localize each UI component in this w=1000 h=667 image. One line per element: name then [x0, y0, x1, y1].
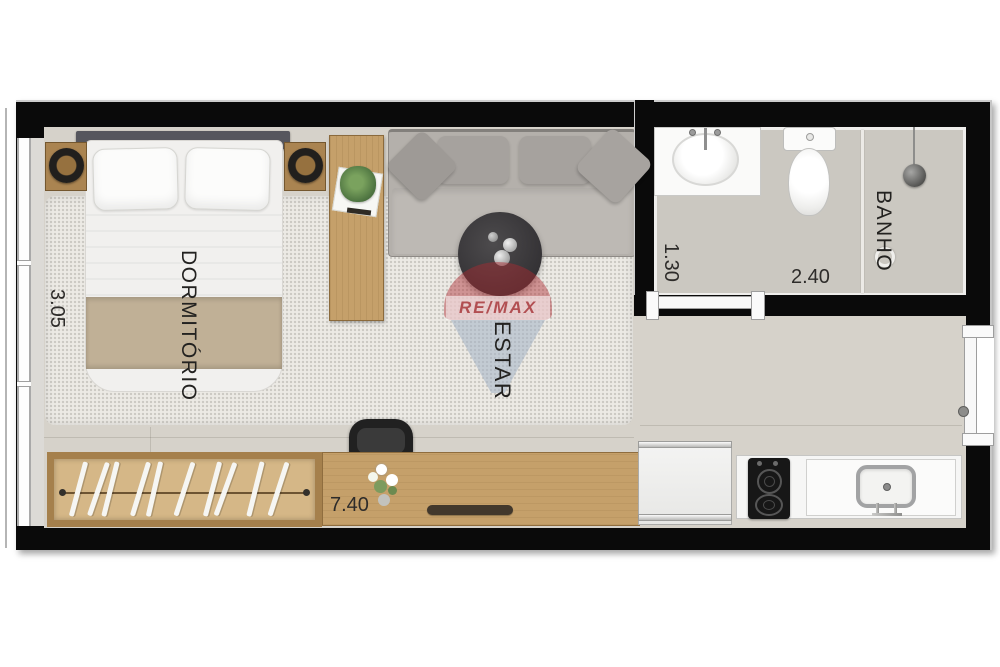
burner-ring: [764, 476, 775, 487]
dimension-total-length: 7.40: [330, 494, 369, 517]
faucet-handle: [714, 129, 721, 136]
bathroom-door-jamb: [751, 291, 765, 320]
toilet-flush-button: [806, 133, 814, 141]
nightstand-right: [284, 142, 326, 191]
decor-tray: [288, 148, 323, 183]
bathroom-label: BANHO: [871, 190, 895, 272]
bed-pillow: [184, 147, 271, 211]
window-glass: [31, 138, 44, 526]
hanger: [69, 461, 88, 516]
chair-seat: [357, 428, 405, 454]
appliance-fridge: [638, 441, 732, 525]
rail-end: [59, 489, 66, 496]
dimension-bathroom-width: 1.30: [659, 243, 682, 282]
flower: [376, 464, 387, 475]
hanger: [246, 461, 264, 516]
facade-line: [5, 108, 7, 548]
window-mullion: [17, 381, 31, 387]
wardrobe: [47, 452, 322, 527]
leaves: [388, 486, 397, 495]
nightstand-left: [45, 142, 87, 191]
entry-door: [964, 337, 977, 434]
kitchen-faucet: [883, 483, 891, 491]
living-label: ESTAR: [489, 321, 515, 400]
bathroom-wall: [634, 100, 654, 316]
sideboard: [329, 135, 384, 321]
desk-accessory: [427, 505, 513, 515]
toilet: [788, 148, 830, 216]
shower-partition: [861, 130, 864, 293]
faucet-handle: [689, 129, 696, 136]
entry-door-jamb: [962, 325, 994, 338]
bedroom-label: DORMITÓRIO: [176, 250, 200, 402]
dimension-bathroom-length: 2.40: [791, 266, 830, 289]
appliance-handle: [638, 441, 732, 448]
hanger: [267, 462, 289, 517]
appliance-edge: [638, 514, 732, 521]
burner-ring: [763, 500, 775, 510]
cooktop-knob: [757, 461, 762, 466]
dimension-bedroom-width: 3.05: [45, 289, 68, 328]
window-frame: [17, 138, 31, 526]
floor-joint-line: [44, 437, 634, 438]
floor-joint-line: [640, 425, 962, 426]
cooktop-knob: [773, 461, 778, 466]
remax-logo-text: RE/MAX: [459, 298, 537, 318]
floor-joint-line: [150, 427, 151, 452]
floorplan-image: RE/MAX: [0, 0, 1000, 667]
decor-tray: [49, 148, 84, 183]
entry-door-handle: [958, 406, 969, 417]
remax-balloon-band: RE/MAX: [446, 296, 550, 320]
flower-vase: [366, 462, 404, 510]
window-mullion: [17, 260, 31, 266]
sink-pipe: [872, 513, 902, 516]
hanger: [173, 462, 195, 517]
faucet-spout: [704, 128, 707, 150]
entry-door-jamb: [962, 433, 994, 446]
vase: [378, 494, 390, 506]
bed-pillow: [92, 147, 179, 211]
leaves: [374, 480, 387, 493]
bathroom-door: [658, 296, 752, 309]
decor-ball: [488, 232, 498, 242]
potted-plant: [340, 166, 376, 202]
rail-end: [303, 489, 310, 496]
cooktop: [748, 458, 790, 519]
shower-head: [903, 164, 926, 187]
flower: [386, 474, 398, 486]
